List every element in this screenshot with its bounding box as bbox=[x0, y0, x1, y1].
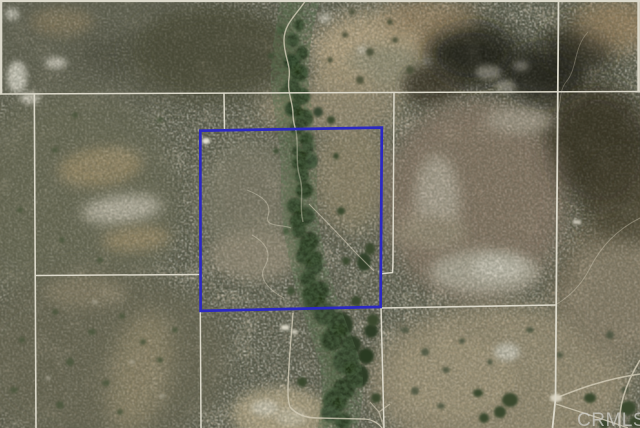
svg-text:CRMLS: CRMLS bbox=[577, 410, 640, 428]
